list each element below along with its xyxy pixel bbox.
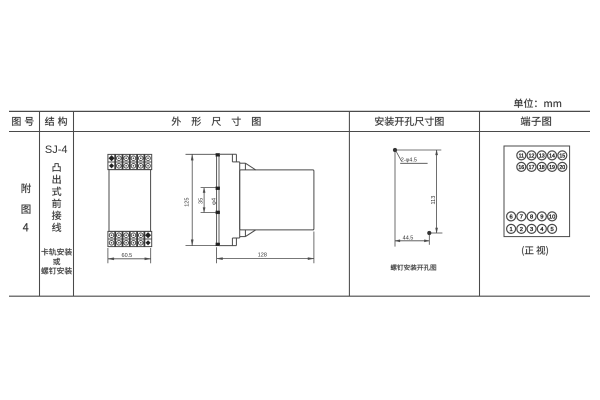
svg-text:7: 7 <box>520 215 523 221</box>
svg-text:6: 6 <box>509 215 512 221</box>
svg-text:16: 16 <box>518 165 524 171</box>
svg-text:3: 3 <box>530 227 533 233</box>
svg-text:44.5: 44.5 <box>403 236 414 242</box>
svg-text:18: 18 <box>539 165 545 171</box>
svg-text:15: 15 <box>559 154 565 160</box>
svg-text:11: 11 <box>519 154 524 160</box>
svg-text:2: 2 <box>520 227 523 233</box>
svg-text:19: 19 <box>549 165 555 171</box>
svg-text:60.5: 60.5 <box>122 253 133 259</box>
svg-text:9: 9 <box>540 215 543 221</box>
svg-text:2-φ4.5: 2-φ4.5 <box>401 158 417 164</box>
svg-text:13: 13 <box>539 154 545 160</box>
svg-text:20: 20 <box>559 165 565 171</box>
svg-text:128: 128 <box>258 253 267 259</box>
svg-text:12: 12 <box>529 154 535 160</box>
svg-text:125: 125 <box>185 198 191 207</box>
svg-text:35: 35 <box>198 198 204 204</box>
svg-text:SJ-4: SJ-4 <box>45 144 68 156</box>
svg-text:8: 8 <box>530 215 533 221</box>
svg-text:113: 113 <box>431 196 437 205</box>
svg-text:17: 17 <box>529 165 535 171</box>
svg-text:14: 14 <box>549 154 555 160</box>
svg-text:5: 5 <box>550 227 553 233</box>
svg-text:10: 10 <box>549 215 555 221</box>
svg-text:1: 1 <box>509 227 512 233</box>
